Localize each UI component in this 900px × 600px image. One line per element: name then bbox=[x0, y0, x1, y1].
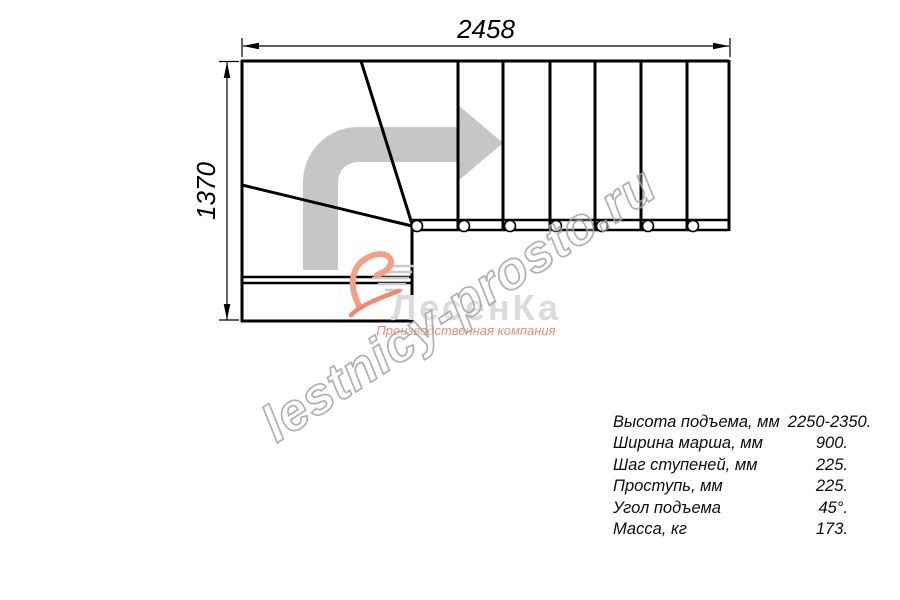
spec-row: Масса, кг 173. bbox=[613, 519, 848, 540]
spec-row: Угол подъема 45°. bbox=[613, 498, 848, 519]
spec-value: 225. bbox=[723, 476, 848, 497]
spec-list: Высота подъема, мм 2250-2350. Ширина мар… bbox=[613, 412, 848, 540]
dim-arrowhead-top bbox=[224, 62, 231, 78]
spec-label: Шаг ступеней, мм bbox=[613, 455, 757, 476]
dimension-label-height: 1370 bbox=[191, 162, 221, 220]
baluster-circle bbox=[643, 221, 654, 232]
spec-value: 173. bbox=[687, 519, 848, 540]
spec-row: Ширина марша, мм 900. bbox=[613, 433, 848, 454]
baluster-circle bbox=[459, 221, 470, 232]
spec-row: Шаг ступеней, мм 225. bbox=[613, 455, 848, 476]
spec-row: Высота подъема, мм 2250-2350. bbox=[613, 412, 848, 433]
baluster-circle bbox=[688, 221, 699, 232]
dimension-label-width: 2458 bbox=[456, 14, 515, 44]
dimension-left bbox=[219, 62, 239, 321]
spec-label: Проступь, мм bbox=[613, 476, 723, 497]
spec-value: 900. bbox=[763, 433, 848, 454]
dim-arrowhead-right bbox=[713, 43, 729, 50]
spec-value: 2250-2350. bbox=[780, 412, 872, 433]
spec-label: Высота подъема, мм bbox=[613, 412, 780, 433]
dim-arrowhead-left bbox=[243, 43, 259, 50]
spec-label: Угол подъема bbox=[613, 498, 721, 519]
baluster-circle bbox=[412, 221, 423, 232]
dim-arrowhead-bottom bbox=[224, 304, 231, 320]
direction-arrow bbox=[303, 105, 503, 270]
spec-row: Проступь, мм 225. bbox=[613, 476, 848, 497]
baluster-circle bbox=[505, 221, 516, 232]
spec-label: Масса, кг bbox=[613, 519, 687, 540]
staircase-drawing-page: 2458 1370 ЛесенКа Производственная bbox=[0, 0, 900, 600]
spec-label: Ширина марша, мм bbox=[613, 433, 763, 454]
spec-value: 225. bbox=[757, 455, 848, 476]
spec-value: 45°. bbox=[721, 498, 848, 519]
